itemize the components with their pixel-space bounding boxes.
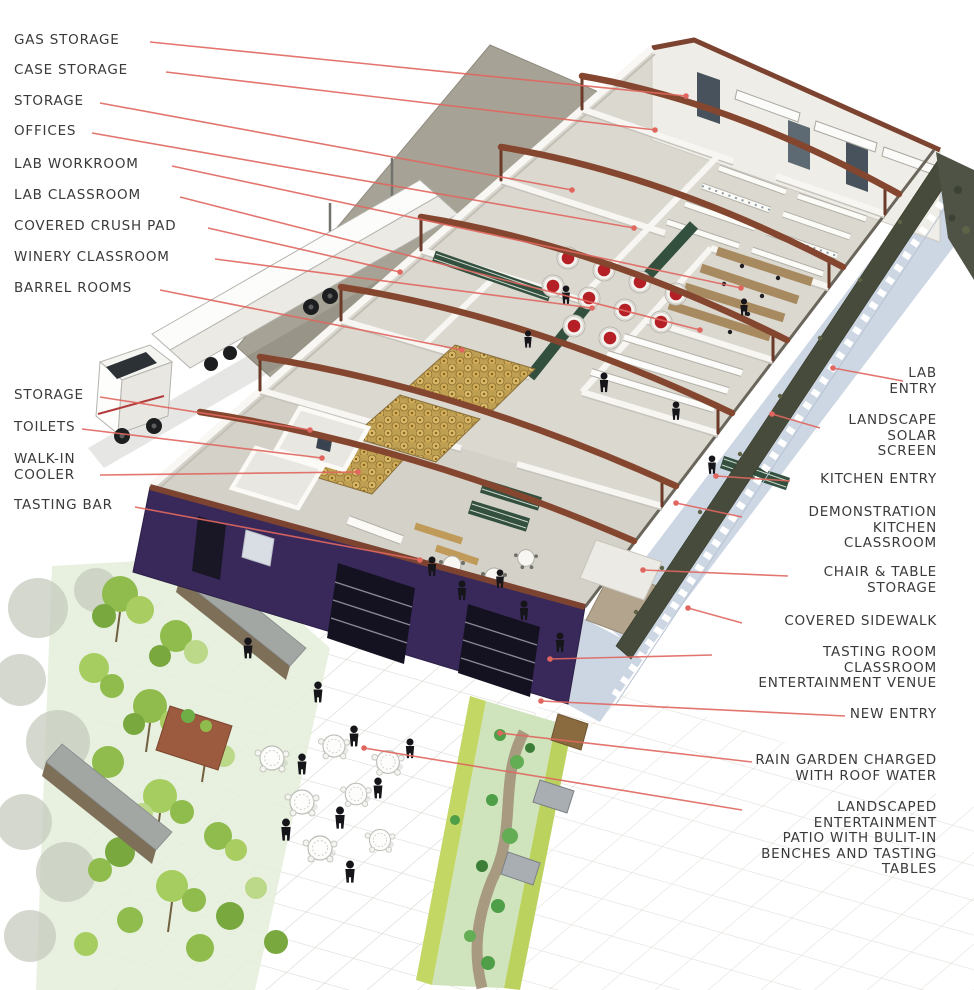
- leader-line-tasting-bar: [135, 507, 420, 560]
- leader-dot-barrel-rooms: [459, 347, 465, 353]
- leader-line-chair-table-storage: [643, 570, 788, 576]
- leader-dot-landscape-solar-screen: [769, 411, 775, 417]
- leader-dot-offices: [631, 225, 637, 231]
- leader-dot-covered-sidewalk: [685, 605, 691, 611]
- leader-line-landscape-solar-screen: [772, 414, 820, 428]
- leader-lines-layer: [0, 0, 974, 990]
- leader-line-barrel-rooms: [160, 290, 462, 350]
- leader-dot-lab-workroom: [738, 285, 744, 291]
- leader-line-lab-workroom: [172, 166, 741, 288]
- leader-line-tasting-room-venue: [550, 655, 712, 659]
- leader-line-covered-sidewalk: [688, 608, 742, 623]
- leader-dot-storage-lower: [307, 427, 313, 433]
- leader-dot-chair-table-storage: [640, 567, 646, 573]
- leader-dot-rain-garden: [497, 730, 503, 736]
- leader-line-gas-storage: [150, 42, 686, 96]
- leader-dot-case-storage: [652, 127, 658, 133]
- leader-line-winery-classroom: [215, 259, 592, 308]
- leader-line-kitchen-entry: [716, 476, 790, 481]
- diagram-stage: GAS STORAGECASE STORAGESTORAGEOFFICESLAB…: [0, 0, 974, 990]
- leader-line-walk-in-cooler: [100, 472, 358, 475]
- leader-line-landscaped-patio: [364, 748, 742, 810]
- leader-dot-gas-storage: [683, 93, 689, 99]
- leader-dot-lab-entry: [830, 365, 836, 371]
- leader-dot-lab-classroom: [697, 327, 703, 333]
- leader-dot-storage-upper: [569, 187, 575, 193]
- leader-line-storage-lower: [100, 397, 310, 430]
- leader-line-new-entry: [541, 701, 845, 716]
- leader-dot-winery-classroom: [589, 305, 595, 311]
- leader-dot-covered-crush-pad: [397, 269, 403, 275]
- leader-dot-kitchen-entry: [713, 473, 719, 479]
- leader-line-toilets: [82, 429, 322, 458]
- leader-line-covered-crush-pad: [208, 228, 400, 272]
- leader-dot-new-entry: [538, 698, 544, 704]
- leader-dot-toilets: [319, 455, 325, 461]
- leader-line-offices: [92, 133, 634, 228]
- leader-dot-landscaped-patio: [361, 745, 367, 751]
- leader-dot-walk-in-cooler: [355, 469, 361, 475]
- leader-dot-tasting-bar: [417, 557, 423, 563]
- leader-line-case-storage: [166, 72, 655, 130]
- leader-line-rain-garden: [500, 733, 752, 762]
- leader-line-demonstration-kitchen-classroom: [676, 503, 742, 517]
- leader-line-lab-entry: [833, 368, 903, 381]
- leader-dot-demonstration-kitchen-classroom: [673, 500, 679, 506]
- leader-dot-tasting-room-venue: [547, 656, 553, 662]
